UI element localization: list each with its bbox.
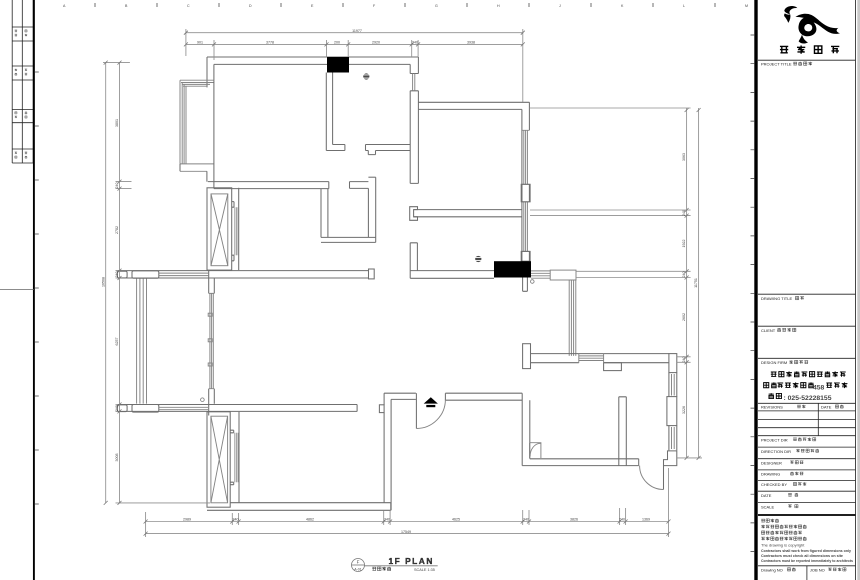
svg-text:E: E (311, 4, 314, 8)
svg-text:3008: 3008 (115, 454, 119, 462)
svg-text:SCALE: SCALE (761, 504, 774, 509)
svg-text:DESIGNER: DESIGNER (761, 461, 782, 466)
svg-text:G: G (435, 4, 438, 8)
svg-text:DRAWING TITLE: DRAWING TITLE (761, 296, 792, 301)
svg-text:A-01: A-01 (354, 568, 361, 572)
svg-text:1F PLAN: 1F PLAN (389, 556, 434, 566)
svg-text:DATE: DATE (761, 493, 772, 498)
svg-text:240: 240 (682, 357, 686, 363)
svg-text:JOB NO: JOB NO (810, 568, 825, 573)
svg-text:DIRECTION DIR: DIRECTION DIR (761, 449, 791, 454)
svg-text:240: 240 (412, 41, 418, 45)
svg-text:240: 240 (682, 272, 686, 278)
svg-text:REVISIONS: REVISIONS (761, 405, 783, 410)
svg-text:Contractors must be reported i: Contractors must be reported immediately… (761, 558, 854, 563)
svg-text:PROJECT DIR: PROJECT DIR (761, 438, 788, 443)
svg-text:3226: 3226 (682, 406, 686, 414)
svg-text:J: J (559, 4, 561, 8)
svg-text:3801: 3801 (115, 119, 119, 127)
svg-text:901: 901 (197, 41, 203, 45)
svg-text:17549: 17549 (401, 530, 411, 534)
svg-text:2602: 2602 (682, 313, 686, 321)
svg-text:M: M (745, 4, 748, 8)
svg-text:2989: 2989 (183, 518, 191, 522)
svg-text:6257: 6257 (115, 338, 119, 346)
svg-text:F: F (357, 560, 360, 565)
svg-text:4862: 4862 (306, 518, 314, 522)
svg-text:B: B (125, 4, 128, 8)
svg-text:240: 240 (523, 518, 529, 522)
svg-text:3063: 3063 (682, 153, 686, 161)
svg-text:: 025-52228155: : 025-52228155 (784, 395, 832, 402)
svg-text:240: 240 (619, 518, 625, 522)
svg-text:PROJECT TITLE: PROJECT TITLE (761, 62, 792, 67)
svg-text:H: H (497, 4, 500, 8)
svg-text:4625: 4625 (452, 518, 460, 522)
svg-text:2782: 2782 (115, 226, 119, 234)
svg-text:200: 200 (334, 41, 340, 45)
svg-text:3778: 3778 (266, 41, 274, 45)
svg-text:The drawing is copyright: The drawing is copyright (761, 543, 805, 548)
svg-text:11977: 11977 (352, 29, 362, 33)
svg-text:240: 240 (115, 405, 119, 411)
svg-text:240: 240 (682, 210, 686, 216)
svg-text:240: 240 (115, 183, 119, 189)
svg-text:CHECKED BY: CHECKED BY (761, 482, 787, 487)
svg-text:11751: 11751 (694, 278, 698, 288)
svg-text:240: 240 (233, 518, 239, 522)
svg-text:1369: 1369 (642, 518, 650, 522)
svg-text:240: 240 (384, 518, 390, 522)
svg-text:DATE: DATE (821, 405, 832, 410)
svg-text:C: C (187, 4, 190, 8)
svg-text:458: 458 (813, 384, 825, 391)
svg-text:D: D (249, 4, 252, 8)
svg-text:16568: 16568 (101, 277, 105, 287)
svg-text:DRAWING: DRAWING (761, 472, 780, 477)
svg-text:SCALE 1:35: SCALE 1:35 (414, 568, 435, 572)
svg-text:CLIENT: CLIENT (761, 328, 776, 333)
svg-text:3826: 3826 (570, 518, 578, 522)
svg-text:2920: 2920 (372, 41, 380, 45)
svg-text:3938: 3938 (467, 41, 475, 45)
svg-text:A: A (63, 4, 66, 8)
svg-text:Drawing NO: Drawing NO (761, 568, 783, 573)
svg-text:K: K (621, 4, 624, 8)
svg-text:L: L (683, 4, 685, 8)
svg-text:1922: 1922 (682, 240, 686, 248)
svg-text:DESIGN FIRM: DESIGN FIRM (761, 360, 787, 365)
svg-text:F: F (373, 4, 376, 8)
svg-text:240: 240 (115, 272, 119, 278)
